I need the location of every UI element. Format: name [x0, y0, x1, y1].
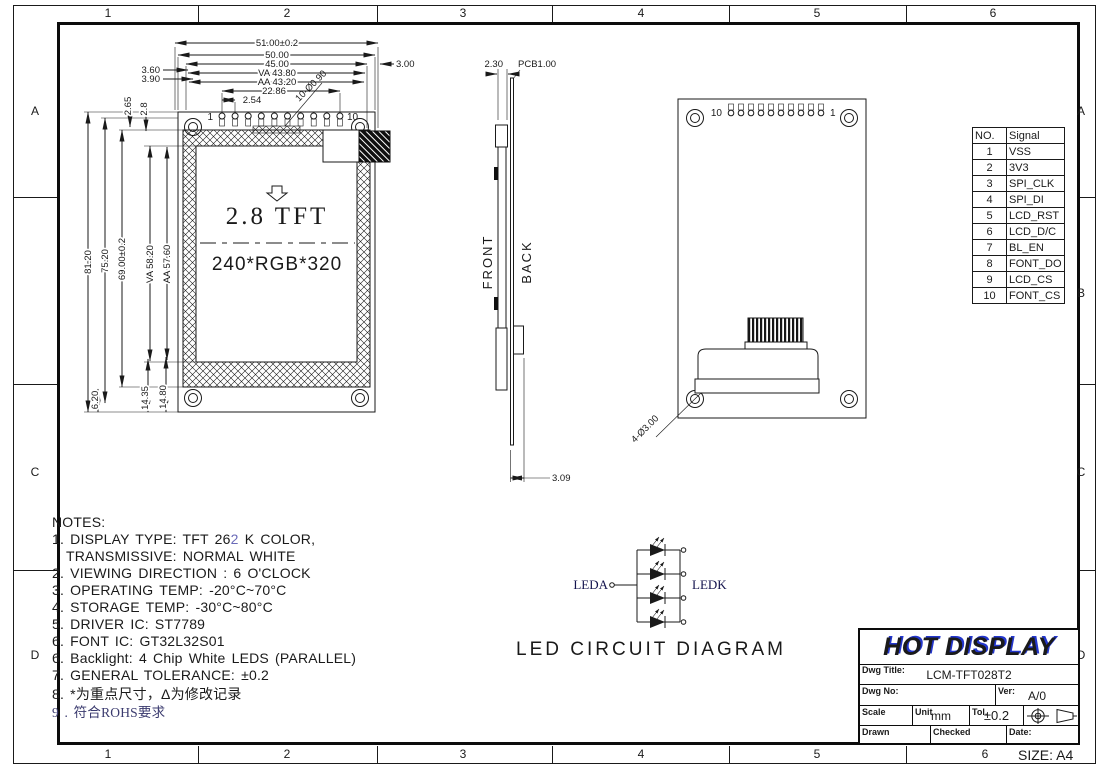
note-text: K COLOR,: [239, 531, 316, 547]
zone-col: 5: [797, 746, 837, 763]
note-line: 4. STORAGE TEMP: -30°C~80°C: [52, 599, 273, 615]
note-line: 3. OPERATING TEMP: -20°C~70°C: [52, 582, 287, 598]
note-line-rohs: 9 . 符合ROHS要求: [52, 701, 165, 721]
zone-col: 2: [267, 746, 307, 763]
pin-no: 1: [973, 144, 1007, 160]
pin-signal: SPI_DI: [1007, 192, 1065, 208]
col-header-no: NO.: [973, 128, 1007, 144]
note-line: 5. DRIVER IC: ST7789: [52, 616, 205, 632]
zone-row: C: [1066, 462, 1096, 482]
zone-col: 1: [88, 5, 128, 22]
pin-no: 7: [973, 240, 1007, 256]
checked-label: Checked: [933, 727, 971, 737]
projection-symbol-cell: [1024, 706, 1078, 726]
table-header-row: NO. Signal: [973, 128, 1065, 144]
table-row: 7BL_EN: [973, 240, 1065, 256]
pin-no: 2: [973, 160, 1007, 176]
signal-table: NO. Signal 1VSS 23V3 3SPI_CLK 4SPI_DI 5L…: [972, 127, 1065, 304]
table-row: 3SPI_CLK: [973, 176, 1065, 192]
checked-cell: Checked: [931, 726, 1007, 743]
notes-title: NOTES:: [52, 514, 105, 530]
note-line: 2. VIEWING DIRECTION : 6 O'CLOCK: [52, 565, 311, 581]
zone-col: 6: [973, 5, 1013, 22]
note-text: 1. DISPLAY TYPE: TFT 26: [52, 531, 231, 547]
company-logo-text: HOT DISPLAY: [860, 630, 1078, 665]
zone-row: A: [13, 101, 57, 121]
note-line: 6. Backlight: 4 Chip White LEDS (PARALLE…: [52, 650, 356, 666]
zone-col: 6: [965, 746, 1005, 763]
pin-signal: FONT_DO: [1007, 256, 1065, 272]
pin-signal: SPI_CLK: [1007, 176, 1065, 192]
tolerance-value: ±0.2: [970, 708, 1023, 723]
table-row: 8FONT_DO: [973, 256, 1065, 272]
zone-row: B: [1066, 283, 1096, 303]
scale-label: Scale: [862, 707, 886, 717]
zone-row: C: [13, 462, 57, 482]
dwg-title-value: LCM-TFT028T2: [860, 668, 1078, 682]
date-cell: Date:: [1007, 726, 1078, 743]
dwg-title-cell: Dwg Title: LCM-TFT028T2: [860, 664, 1078, 685]
pin-signal: VSS: [1007, 144, 1065, 160]
tolerance-cell: Tol. ±0.2: [970, 706, 1024, 726]
zone-col: 4: [621, 746, 661, 763]
table-row: 5LCD_RST: [973, 208, 1065, 224]
pin-signal: FONT_CS: [1007, 288, 1065, 304]
unit-value: mm: [913, 709, 969, 723]
unit-cell: Unit mm: [913, 706, 970, 726]
table-row: 4SPI_DI: [973, 192, 1065, 208]
scale-cell: Scale: [860, 706, 913, 726]
sheet-size-label: SIZE: A4: [1018, 746, 1096, 764]
pin-signal: BL_EN: [1007, 240, 1065, 256]
pin-no: 8: [973, 256, 1007, 272]
pin-signal: 3V3: [1007, 160, 1065, 176]
note-line-1: 1. DISPLAY TYPE: TFT 262 K COLOR,: [52, 531, 315, 547]
version-cell: Ver: A/0: [996, 685, 1078, 706]
col-header-signal: Signal: [1007, 128, 1065, 144]
drawn-label: Drawn: [862, 727, 890, 737]
zone-row: A: [1066, 101, 1096, 121]
title-block: HOT DISPLAY Dwg Title: LCM-TFT028T2 Dwg …: [858, 628, 1080, 745]
zone-col: 2: [267, 5, 307, 22]
table-row: 23V3: [973, 160, 1065, 176]
pin-signal: LCD_CS: [1007, 272, 1065, 288]
dwg-no-cell: Dwg No:: [860, 685, 996, 706]
zone-col: 5: [797, 5, 837, 22]
note-line: 6. FONT IC: GT32L32S01: [52, 633, 225, 649]
engineering-drawing-page: { "frame": { "top_columns": ["1","2","3"…: [0, 0, 1102, 769]
pin-no: 6: [973, 224, 1007, 240]
pin-no: 10: [973, 288, 1007, 304]
note-line: 7. GENERAL TOLERANCE: ±0.2: [52, 667, 269, 683]
table-row: 6LCD_D/C: [973, 224, 1065, 240]
pin-no: 3: [973, 176, 1007, 192]
pin-no: 4: [973, 192, 1007, 208]
zone-col: 3: [443, 5, 483, 22]
pin-no: 9: [973, 272, 1007, 288]
dwg-no-label: Dwg No:: [862, 686, 899, 696]
table-row: 9LCD_CS: [973, 272, 1065, 288]
zone-row: D: [13, 645, 57, 665]
pin-signal: LCD_D/C: [1007, 224, 1065, 240]
table-row: 1VSS: [973, 144, 1065, 160]
drawn-cell: Drawn: [860, 726, 931, 743]
projection-symbol-icon: [1024, 707, 1078, 725]
date-label: Date:: [1009, 727, 1032, 737]
pin-no: 5: [973, 208, 1007, 224]
note-line-1b: TRANSMISSIVE: NORMAL WHITE: [66, 548, 296, 564]
zone-col: 4: [621, 5, 661, 22]
pin-signal: LCD_RST: [1007, 208, 1065, 224]
note-text-highlight: 2: [231, 531, 239, 547]
table-row: 10FONT_CS: [973, 288, 1065, 304]
zone-col: 3: [443, 746, 483, 763]
zone-col: 1: [88, 746, 128, 763]
version-value: A/0: [996, 689, 1078, 703]
